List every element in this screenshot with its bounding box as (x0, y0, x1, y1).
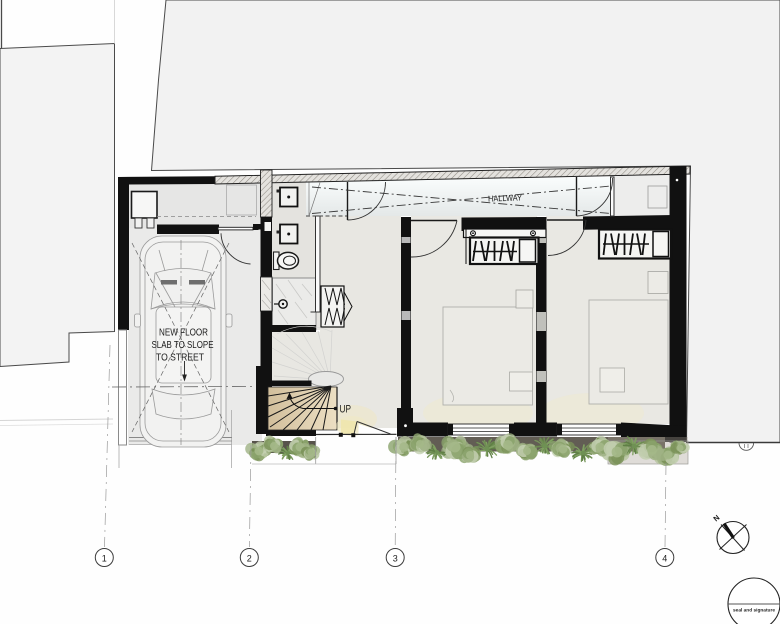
svg-text:TO STREET: TO STREET (156, 353, 204, 364)
svg-text:HALLWAY: HALLWAY (488, 192, 523, 203)
svg-text:N: N (712, 513, 722, 523)
svg-text:2: 2 (247, 553, 252, 563)
svg-text:4: 4 (662, 553, 667, 563)
svg-text:3: 3 (393, 553, 398, 563)
svg-text:SLAB TO SLOPE: SLAB TO SLOPE (152, 340, 214, 351)
svg-text:UP: UP (340, 404, 352, 416)
svg-text:seal and signature: seal and signature (733, 608, 776, 613)
svg-text:1: 1 (102, 553, 107, 563)
svg-text:NEW FLOOR: NEW FLOOR (159, 328, 208, 339)
